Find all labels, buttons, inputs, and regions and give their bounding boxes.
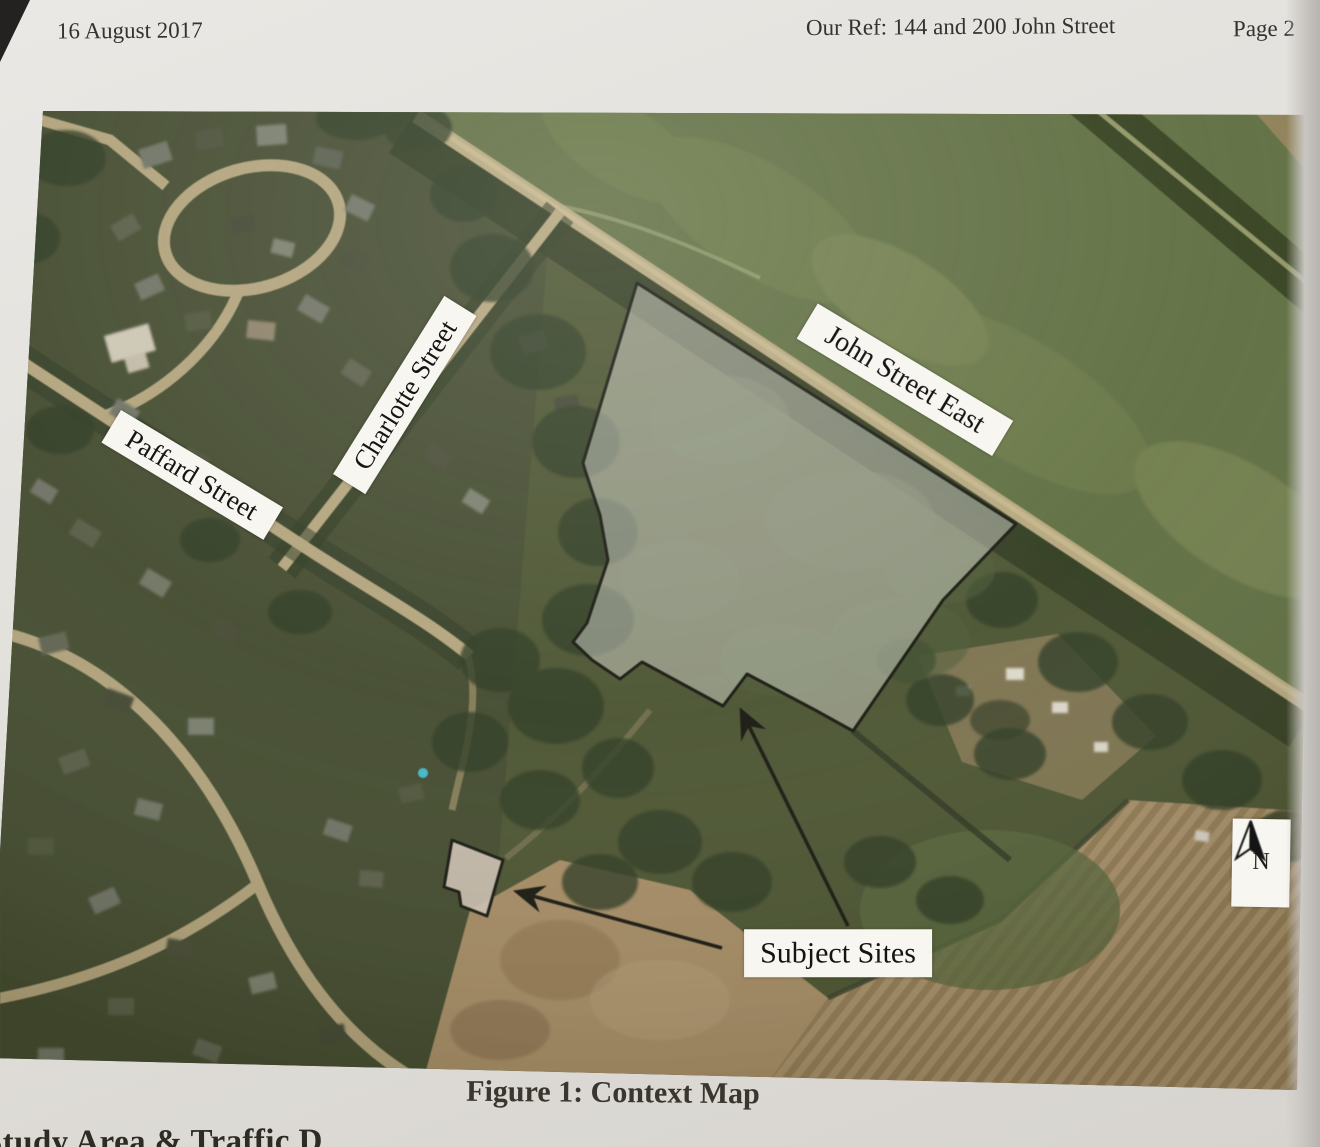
subject-sites-label: Subject Sites — [744, 929, 932, 977]
page-corner-shadow — [0, 0, 34, 70]
aerial-scene — [0, 100, 1320, 1092]
next-section-heading-partial: Study Area & Traffic D — [0, 1123, 323, 1147]
north-arrow-icon — [1232, 819, 1269, 864]
figure-caption: Figure 1: Context Map — [466, 1075, 760, 1112]
paper-edge-shadow — [1286, 0, 1320, 1147]
north-indicator: N — [1231, 819, 1291, 908]
context-map-figure: Paffard Street Charlotte Street John Str… — [0, 100, 1320, 1092]
document-page: 16 August 2017 Our Ref: 144 and 200 John… — [0, 0, 1320, 1147]
header-date: 16 August 2017 — [57, 17, 203, 44]
header-reference: Our Ref: 144 and 200 John Street — [806, 13, 1115, 41]
